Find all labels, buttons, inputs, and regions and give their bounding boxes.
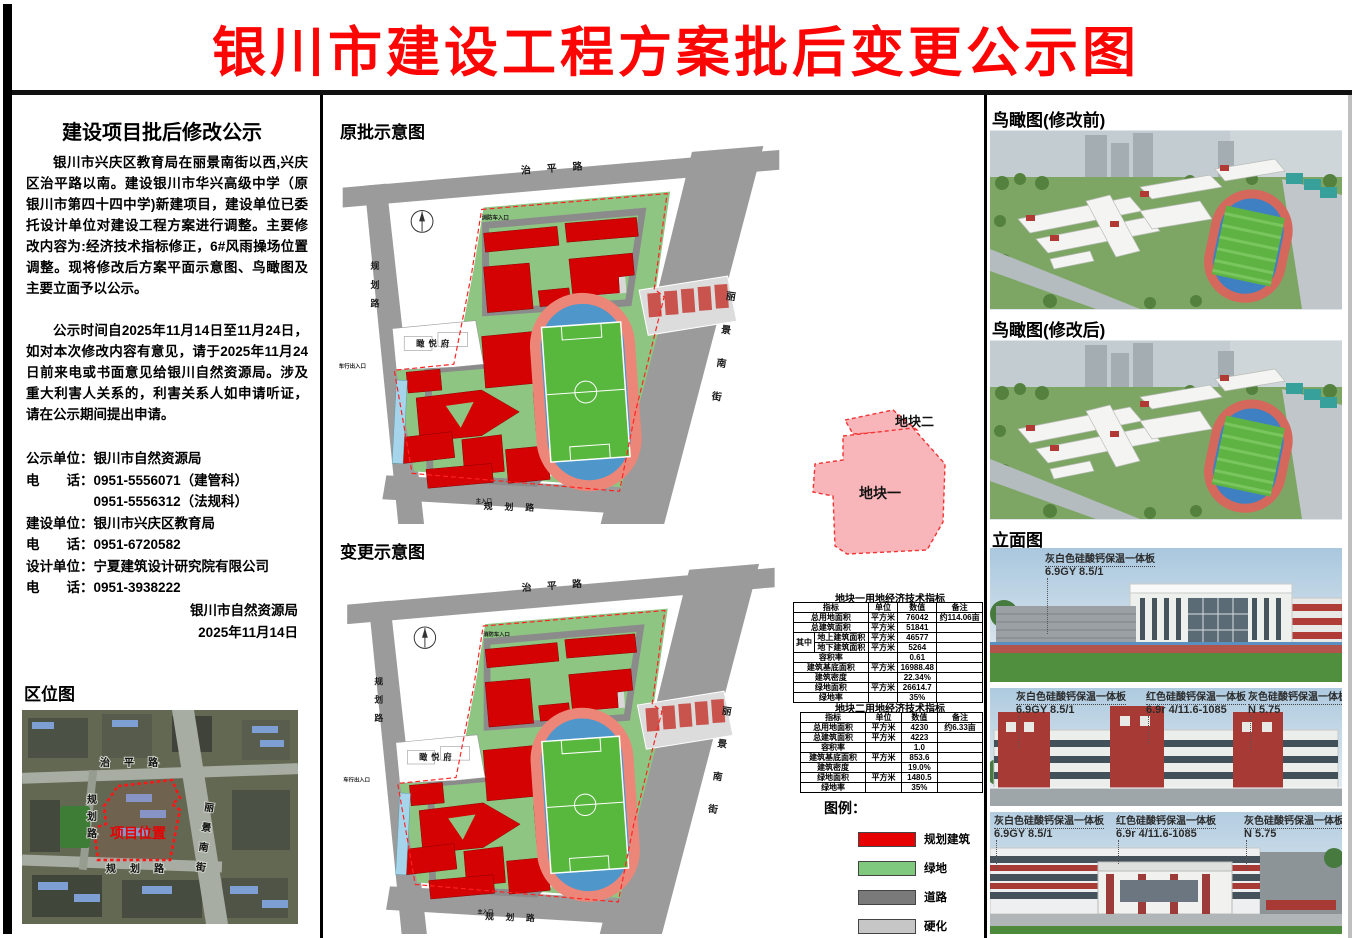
road-label-bottom: 规划路 [485,910,547,923]
aerial-before-image [990,130,1342,310]
legend-item: 硬化 [858,918,982,934]
table-row: 总建筑面积平方米4223 [801,733,983,743]
public-notice-poster: 银川市建设工程方案批后变更公示图 建设项目批后修改公示 银川市兴庆区教育局在丽景… [0,0,1352,938]
road-label-left: 规划路 [369,260,379,318]
legend-label: 绿地 [924,860,947,876]
table-row: 建筑基底面积平方米16988.48 [794,663,983,673]
notice-paragraph-1: 银川市兴庆区教育局在丽景南街以西,兴庆区治平路以南。建设银川市华兴高级中学（原银… [26,152,308,299]
table-row: 绿地率35% [801,783,983,793]
table-row: 容积率1.0 [801,743,983,753]
page-title: 银川市建设工程方案批后变更公示图 [0,8,1352,87]
parcel-1-label: 地块一 [859,485,901,501]
legend-title: 图例： [824,798,982,818]
table-row: 总建筑面积平方米51841 [794,623,983,633]
material-annotation: 灰白色硅酸钙保温一体板 6.9GY 8.5/1 [994,816,1104,870]
entrance-bottom-label: 主入口 [477,908,493,916]
title-divider [12,90,1352,95]
parcel-2-label: 地块二 [895,414,934,429]
elevation-image-3: 灰白色硅酸钙保温一体板 6.9GY 8.5/1 红色硅酸钙保温一体板 6.9r … [990,812,1342,934]
column-divider-2 [984,95,987,938]
contact-block: 公示单位：银川市自然资源局电 话：0951-5556071（建管科） 0951-… [26,448,312,599]
material-annotation: 灰色硅酸钙保温一体板 N 5.75 [1248,692,1342,750]
table-row: 总用地面积平方米4230约6.33亩 [801,723,983,733]
aerial-rendering [990,340,1342,520]
legend-swatch [858,832,916,847]
residence-label: 瞰悦府 [419,752,455,762]
stadium [526,289,645,494]
table-row: 其中地上建筑面积平方米46577 [794,633,983,643]
table-row: 绿地面积平方米1480.5 [801,773,983,783]
entrance-top-label: 消防车入口 [482,213,509,221]
elevation-image-1: 灰白色硅酸钙保温一体板 6.9GY 8.5/1 [990,548,1342,682]
table-row: 容积率0.61 [794,653,983,663]
parcel2-indicator-table: 指标单位数值备注总用地面积平方米4230约6.33亩总建筑面积平方米4223容积… [800,712,983,793]
road-label-left: 规划路 [373,675,383,732]
notice-paragraph-2: 公示时间自2025年11月14日至11月24日，如对本次修改内容有意见，请于20… [26,320,308,425]
material-annotation: 灰白色硅酸钙保温一体板 6.9GY 8.5/1 [1016,692,1126,748]
table-row: 建筑密度19.0% [801,763,983,773]
plan-after-drawing: 治平路 规划路 丽景南街 规划路 瞰悦府 消防车入口 车行出入口 主入口 [334,560,782,934]
legend-label: 道路 [924,889,947,905]
site-plan-drawing: 治平路 规划路 丽景南街 规划路 瞰悦府 消防车入口 车行出入口 主入口 [334,142,782,524]
location-map-title: 区位图 [24,680,75,705]
contact-line: 电 话：0951-5556071（建管科） [26,470,312,492]
notice-title: 建设项目批后修改公示 [14,116,310,145]
road-bottom-label: 规划路 [106,862,178,875]
residence-label: 瞰悦府 [416,338,453,348]
legend-swatch [858,890,916,905]
signature-org: 银川市自然资源局 [26,600,298,622]
annotation-leader-line [1047,578,1049,634]
elevation-image-2: 灰白色硅酸钙保温一体板 6.9GY 8.5/1 红色硅酸钙保温一体板 6.9r … [990,688,1342,806]
contact-line: 电 话：0951-3938222 [26,577,312,599]
table-row: 建筑基底面积平方米853.6 [801,753,983,763]
entrance-left-label: 车行出入口 [343,775,370,783]
material-code: 6.9GY 8.5/1 [1045,566,1155,578]
legend-item: 绿地 [858,860,982,876]
plan-before-drawing: 治平路 规划路 丽景南街 规划路 瞰悦府 消防车入口 车行出入口 主入口 [334,142,782,524]
location-map: 项目位置 治平路 规划路 规划路 丽景南街 [22,710,298,924]
legend-label: 规划建筑 [924,831,970,847]
contact-line: 电 话：0951-6720582 [26,534,312,556]
material-annotation: 灰白色硅酸钙保温一体板 6.9GY 8.5/1 [1045,554,1155,634]
site-plan-drawing: 治平路 规划路 丽景南街 规划路 瞰悦府 消防车入口 车行出入口 主入口 [334,560,782,934]
road-label-bottom: 规划路 [484,500,547,513]
contact-line: 公示单位：银川市自然资源局 [26,448,312,470]
road-top-label: 治平路 [100,756,172,769]
table-row: 总用地面积平方米76042约114.06亩 [794,613,983,623]
contact-line: 0951-5556312（法规科） [26,491,312,513]
left-frame-bar [3,4,12,934]
entrance-bottom-label: 主入口 [476,497,492,505]
road-left-label: 规划路 [85,793,97,845]
aerial-rendering [990,130,1342,310]
location-map-drawing: 项目位置 治平路 规划路 规划路 丽景南街 [22,710,298,924]
material-annotation: 红色硅酸钙保温一体板 6.9r 4/11.6-1085 [1116,816,1216,864]
aerial-after-image [990,340,1342,520]
aerial-after-title: 鸟瞰图(修改后) [992,316,1105,341]
plan-before-title: 原批示意图 [340,118,425,143]
entrance-top-label: 消防车入口 [483,630,510,638]
project-location-label: 项目位置 [110,825,166,841]
legend: 图例： 规划建筑绿地道路硬化 [824,798,982,934]
legend-swatch [858,919,916,934]
table-row: 地下建筑面积平方米5264 [794,643,983,653]
legend-item: 规划建筑 [858,831,982,847]
stadium [527,704,643,905]
contact-line: 设计单位：宁夏建筑设计研究院有限公司 [26,556,312,578]
contact-line: 建设单位：银川市兴庆区教育局 [26,513,312,535]
parcel1-indicator-table: 指标单位数值备注总用地面积平方米76042约114.06亩总建筑面积平方米518… [793,602,983,703]
north-compass-icon [411,210,433,232]
right-frame-bar [1348,90,1352,938]
aerial-before-title: 鸟瞰图(修改前) [992,106,1105,131]
table-row: 绿地面积平方米26614.7 [794,683,983,693]
legend-item: 道路 [858,889,982,905]
entrance-left-label: 车行出入口 [339,362,366,370]
legend-swatch [858,861,916,876]
signature-block: 银川市自然资源局 2025年11月14日 [26,600,298,644]
material-annotation: 红色硅酸钙保温一体板 6.9r 4/11.6-1085 [1146,692,1246,744]
parcel-diagram: 地块二 地块一 [793,402,983,570]
column-divider-1 [320,95,323,938]
north-compass-icon [414,627,435,648]
legend-label: 硬化 [924,918,947,934]
table-row: 建筑密度22.34% [794,673,983,683]
signature-date: 2025年11月14日 [26,622,298,644]
material-annotation: 灰色硅酸钙保温一体板 N 5.75 [1244,816,1342,870]
